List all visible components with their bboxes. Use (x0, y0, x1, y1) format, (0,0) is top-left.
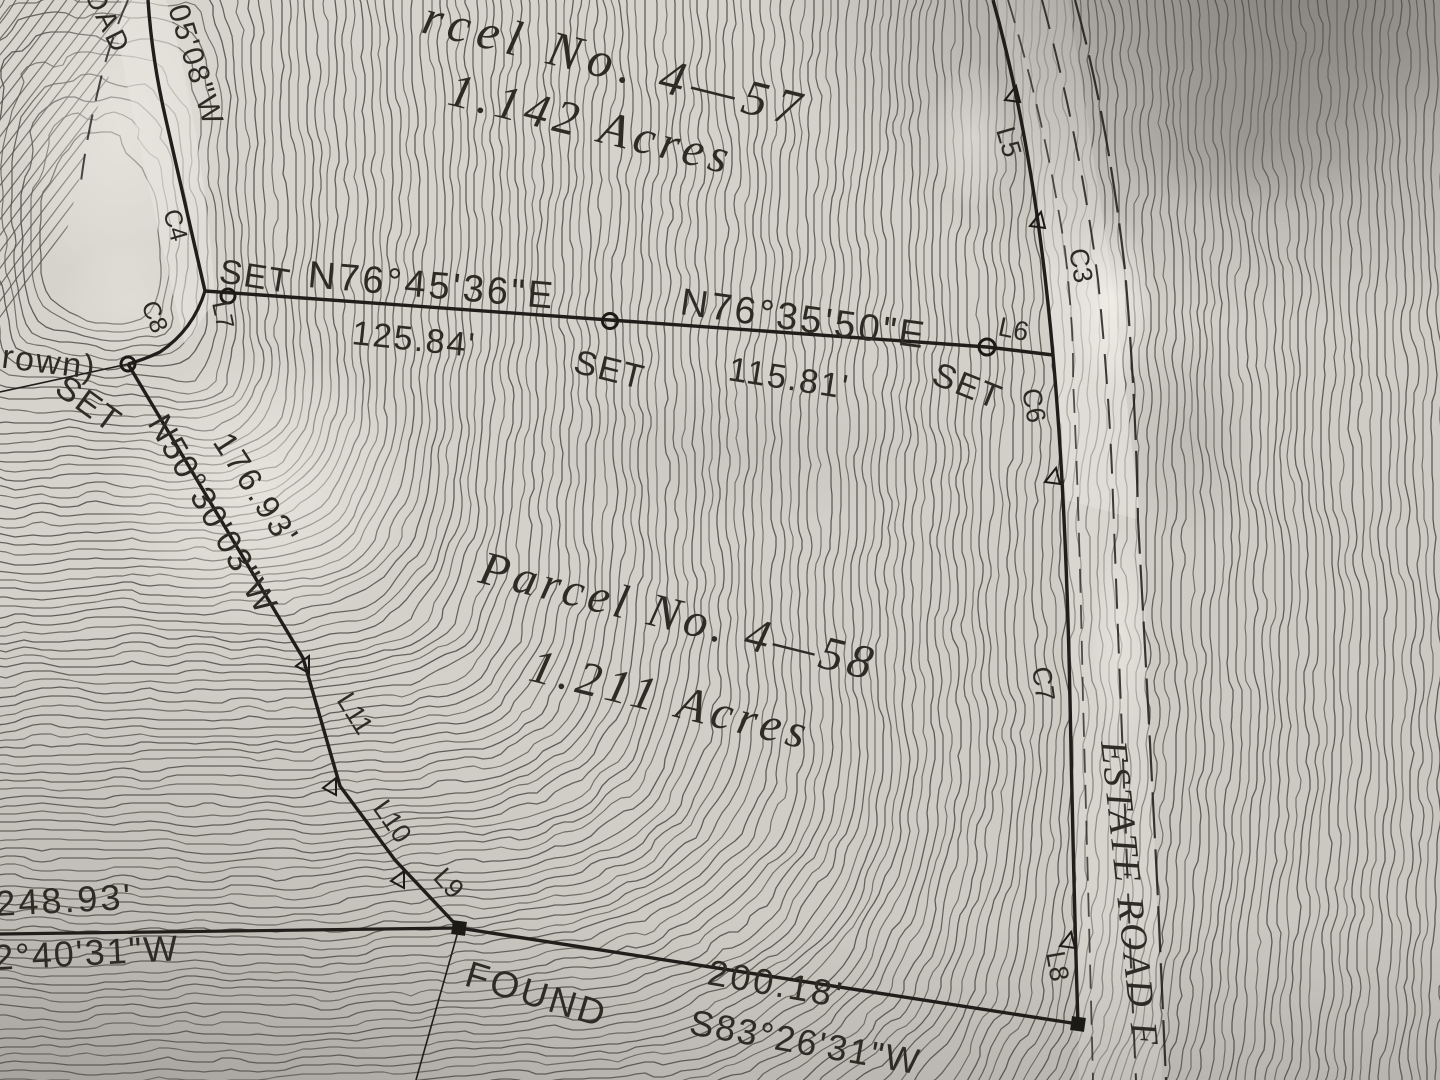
svg-text:248.93': 248.93' (0, 876, 134, 924)
svg-text:L7: L7 (206, 298, 239, 331)
svg-text:L6: L6 (996, 312, 1032, 348)
svg-text:C6: C6 (1016, 386, 1052, 425)
svg-text:C3: C3 (1063, 246, 1099, 285)
svg-text:L8: L8 (1040, 949, 1075, 984)
svg-text:C7: C7 (1026, 665, 1061, 703)
